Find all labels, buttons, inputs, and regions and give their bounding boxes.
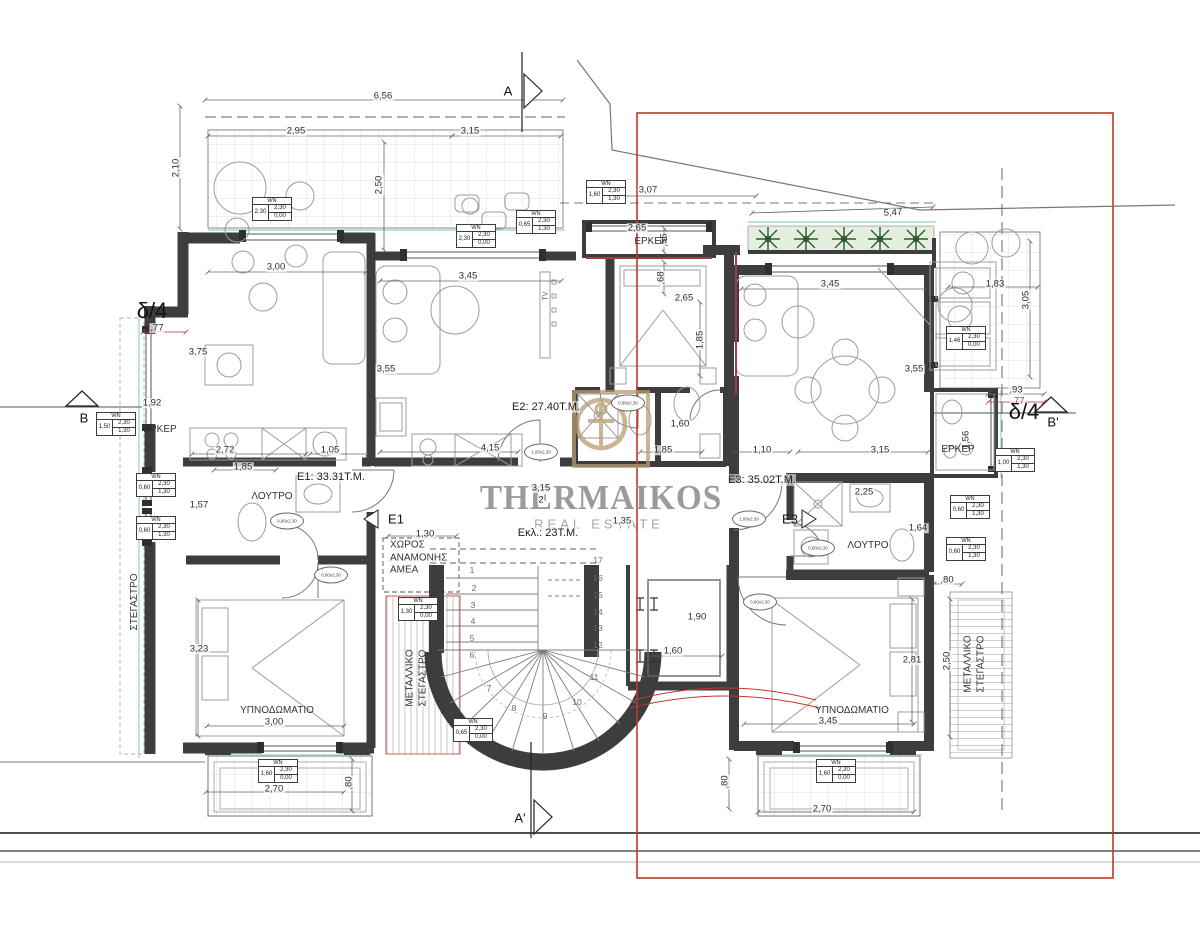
door-size-tag: 1,00x2,30 (732, 511, 766, 528)
door-size-tag: 0,90x2,30 (801, 540, 835, 557)
window-schedule-tag: WN1,502,301,30 (96, 412, 136, 436)
dimension-label: 1,35 (612, 516, 633, 526)
window-schedule-tag: WN2,302,300,00 (456, 224, 496, 248)
unit-area-label: Εκλ.: 23Τ.Μ. (518, 527, 579, 539)
unit-area-label: E1: 33.31Τ.Μ. (297, 471, 365, 483)
stair-step-number: 5 (470, 633, 475, 643)
room-label: TV (543, 292, 552, 301)
window-schedule-tag: WN1,602,300,00 (816, 759, 856, 783)
dimension-label: 2,70 (812, 804, 833, 814)
room-label: ΕΡΚΕΡ (941, 444, 974, 457)
window-schedule-tag: WN2,302,300,00 (252, 197, 292, 221)
section-marker-label: B' (1047, 415, 1058, 430)
stair-step-number: 10 (572, 697, 581, 707)
dimension-label: 3,15 (460, 126, 481, 136)
section-marker-label: B (80, 411, 89, 426)
dimension-label: 2,25 (854, 487, 875, 497)
door-size-tag: 0,90x2,30 (743, 594, 777, 611)
stair-step-number: 13 (593, 623, 602, 633)
dimension-label: 4,15 (480, 443, 501, 453)
dimension-label: ,80 (344, 775, 354, 790)
door-size-tag: 0,90x2,30 (270, 513, 304, 530)
dimension-label: 2,65 (627, 223, 648, 233)
stair-step-number: 7 (487, 683, 492, 693)
dimension-label: 1,05 (320, 445, 341, 455)
stair-step-number: 6 (470, 650, 475, 660)
dimension-label: 1,90 (687, 612, 708, 622)
room-label: ΜΕΤΑΛΛΙΚΟ ΣΤΕΓΑΣΤΡΟ (963, 635, 988, 692)
unit-area-label: E2: 27.40Τ.Μ. (512, 401, 580, 413)
dimension-label: 1,85 (695, 330, 705, 351)
dimension-label: 3,00 (266, 262, 287, 272)
dimension-label: 1,85 (653, 445, 674, 455)
dimension-label: 2,65 (674, 293, 695, 303)
window-schedule-tag: WN1,602,301,30 (586, 180, 626, 204)
section-marker-label: A' (514, 811, 525, 826)
dimension-label: 1,10 (752, 445, 773, 455)
window-schedule-tag: WN0,602,301,30 (950, 495, 990, 519)
section-marker-label: E3 (782, 512, 798, 527)
window-schedule-tag: WN1,002,301,30 (995, 448, 1035, 472)
dimension-label: 2,50 (374, 175, 384, 196)
dimension-label: 3,23 (189, 644, 210, 654)
dimension-label: 1,92 (142, 398, 163, 408)
labels-overlay: THERMAIKOS REAL ESTATE 6,562,953,152,102… (0, 0, 1200, 941)
room-label: ΜΕΤΑΛΛΙΚΟ ΣΤΕΓΑΣΤΡΟ (405, 649, 430, 706)
stair-step-number: 8 (512, 703, 517, 713)
room-label: ΥΠΝΟΔΩΜΑΤΙΟ (240, 705, 314, 718)
dimension-label: 3,45 (818, 716, 839, 726)
dimension-label: ,68 (656, 270, 666, 285)
dimension-label: 1,83 (985, 279, 1006, 289)
dimension-label: ,93 (1008, 385, 1023, 395)
dimension-label: 3,00 (264, 717, 285, 727)
dimension-label: 3,45 (458, 271, 479, 281)
dimension-label: ,80 (939, 575, 954, 585)
dimension-label: 2,72 (215, 445, 236, 455)
dimension-label: 2,50 (942, 651, 952, 672)
stair-step-number: 17 (593, 555, 602, 565)
dimension-label: 2,81 (902, 655, 923, 665)
stair-step-number: 4 (471, 616, 476, 626)
dimension-label: 3,15 (531, 483, 552, 493)
stair-step-number: 3 (471, 600, 476, 610)
dimension-label: ,77 (149, 323, 164, 333)
dimension-label: 3,45 (820, 279, 841, 289)
dimension-label: 2,70 (264, 784, 285, 794)
dimension-label: 2 (537, 495, 544, 505)
room-label: ΛΟΥΤΡΟ (847, 540, 888, 553)
dimension-label: 1,60 (663, 646, 684, 656)
window-schedule-tag: WN1,602,300,00 (258, 759, 298, 783)
window-schedule-tag: WN0,602,301,30 (136, 473, 176, 497)
section-marker-label: E1 (388, 512, 404, 527)
room-label: ΕΡΚΕΡ (634, 236, 667, 249)
dimension-label: 3,75 (188, 347, 209, 357)
stair-step-number: 12 (593, 640, 602, 650)
watermark-brand: THERMAIKOS (480, 478, 722, 518)
window-schedule-tag: WN0,652,301,30 (516, 210, 556, 234)
dimension-label: 1,85 (233, 462, 254, 472)
dimension-label: 3,05 (1021, 290, 1031, 311)
stair-step-number: 9 (543, 711, 548, 721)
dimension-label: 1,60 (670, 419, 691, 429)
section-marker-label: δ/4 (137, 298, 168, 324)
window-schedule-tag: WN0,652,300,00 (453, 718, 493, 742)
stair-step-number: 2 (472, 583, 477, 593)
room-label: ΛΟΥΤΡΟ (251, 491, 292, 504)
dimension-label: ,80 (720, 774, 730, 789)
room-label: ΕΡΚΕΡ (143, 424, 176, 437)
window-schedule-tag: WN0,602,301,30 (946, 537, 986, 561)
window-schedule-tag: WN1,302,300,00 (398, 597, 438, 621)
dimension-label: 3,07 (638, 185, 659, 195)
floorplan-page: THERMAIKOS REAL ESTATE 6,562,953,152,102… (0, 0, 1200, 941)
dimension-label: 3,55 (376, 364, 397, 374)
unit-area-label: E3: 35.02Τ.Μ. (728, 474, 796, 486)
dimension-label: 1,64 (908, 523, 929, 533)
dimension-label: 2,10 (171, 158, 181, 179)
section-marker-label: A (504, 84, 513, 99)
dimension-label: 2,95 (286, 126, 307, 136)
room-label: ΥΠΝΟΔΩΜΑΤΙΟ (815, 705, 889, 718)
door-size-tag: 1,00x2,30 (524, 444, 558, 461)
stair-step-number: 11 (590, 672, 599, 682)
window-schedule-tag: WN1,462,300,00 (946, 326, 986, 350)
stair-step-number: 14 (593, 607, 602, 617)
dimension-label: 5,47 (883, 208, 904, 219)
stair-step-number: 1 (470, 565, 475, 575)
room-label: ΧΩΡΟΣ ΑΝΑΜΟΝΗΣ ΑΜΕΑ (390, 539, 447, 577)
section-marker-label: δ/4 (1009, 399, 1040, 425)
window-schedule-tag: WN0,602,301,30 (136, 516, 176, 540)
dimension-label: 3,55 (904, 364, 925, 374)
door-size-tag: 0,90x2,30 (611, 395, 645, 412)
stair-step-number: 15 (593, 590, 602, 600)
dimension-label: 6,56 (373, 91, 394, 101)
dimension-label: 3,15 (870, 445, 891, 455)
door-size-tag: 0,90x2,30 (314, 567, 348, 584)
dimension-label: 1,57 (189, 500, 210, 510)
dimension-label: 1,30 (415, 529, 436, 539)
stair-step-number: 16 (593, 573, 602, 583)
room-label: ΣΤΕΓΑΣΤΡΟ (129, 574, 142, 631)
